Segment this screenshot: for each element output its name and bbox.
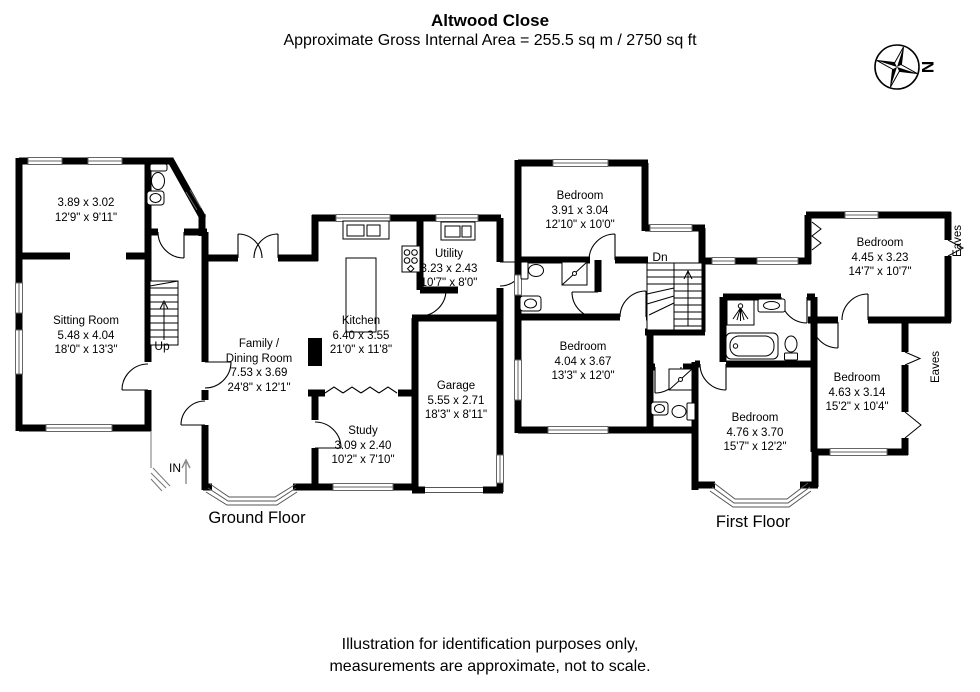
first-floor-title: First Floor — [716, 513, 790, 532]
room-label-family-dining: Family / Dining Room 7.53 x 3.69 24'8" x… — [226, 337, 292, 395]
floorplan-page: Altwood Close Approximate Gross Internal… — [0, 0, 980, 692]
room-dim-imperial: 15'7" x 12'2" — [723, 440, 786, 455]
ground-floor-stairs — [150, 281, 178, 345]
room-label-bedroom-2: Bedroom 4.04 x 3.67 13'3" x 12'0" — [551, 340, 614, 384]
room-dim-imperial: 12'9" x 9'11" — [55, 211, 117, 226]
room-dim-metric: 4.04 x 3.67 — [551, 355, 614, 370]
room-dim-metric: 3.91 x 3.04 — [545, 204, 614, 219]
page-title: Altwood Close — [0, 11, 980, 31]
disclaimer-line-1: Illustration for identification purposes… — [0, 636, 980, 654]
room-name: Bedroom — [848, 236, 911, 251]
room-label-bedroom-1: Bedroom 3.91 x 3.04 12'10" x 10'0" — [545, 189, 614, 233]
ground-floor-bay-window — [206, 484, 297, 505]
room-name: Kitchen — [330, 314, 392, 329]
room-dim-metric: 3.89 x 3.02 — [55, 196, 117, 211]
disclaimer-line-2: measurements are approximate, not to sca… — [0, 658, 980, 676]
room-name-line2: Dining Room — [226, 352, 292, 367]
room-name: Sitting Room — [53, 314, 119, 329]
eaves-label-2: Eaves — [930, 351, 942, 383]
stairs-down-label: Dn — [652, 250, 667, 264]
entrance-porch-steps — [151, 431, 170, 491]
room-name: Family / — [226, 337, 292, 352]
room-name: Garage — [425, 379, 487, 394]
room-label-front-room: 3.89 x 3.02 12'9" x 9'11" — [55, 196, 117, 225]
room-label-garage: Garage 5.55 x 2.71 18'3" x 8'11" — [425, 379, 487, 423]
room-name: Study — [331, 424, 394, 439]
room-dim-imperial: 13'3" x 12'0" — [551, 369, 614, 384]
room-dim-imperial: 15'2" x 10'4" — [825, 400, 888, 415]
room-dim-metric: 6.40 x 3.55 — [330, 329, 392, 344]
room-name: Bedroom — [545, 189, 614, 204]
entrance-in-label: IN — [169, 461, 181, 475]
room-dim-metric: 3.09 x 2.40 — [331, 439, 394, 454]
room-dim-imperial: 14'7" x 10'7" — [848, 265, 911, 280]
room-label-bedroom-4: Bedroom 4.63 x 3.14 15'2" x 10'4" — [825, 371, 888, 415]
room-name: Utility — [421, 247, 478, 262]
room-dim-imperial: 18'0" x 13'3" — [53, 343, 119, 358]
stairs-up-label: Up — [154, 339, 169, 353]
room-label-kitchen: Kitchen 6.40 x 3.55 21'0" x 11'8" — [330, 314, 392, 358]
room-dim-imperial: 18'3" x 8'11" — [425, 408, 487, 423]
room-dim-imperial: 10'2" x 7'10" — [331, 453, 394, 468]
garage-door — [425, 488, 483, 493]
room-label-bedroom-5: Bedroom 4.76 x 3.70 15'7" x 12'2" — [723, 411, 786, 455]
room-dim-metric: 5.55 x 2.71 — [425, 394, 487, 409]
ground-floor-title: Ground Floor — [208, 509, 305, 528]
room-dim-metric: 4.76 x 3.70 — [723, 426, 786, 441]
compass-north-label: N — [917, 61, 937, 73]
room-name: Bedroom — [723, 411, 786, 426]
room-dim-metric: 4.45 x 3.23 — [848, 251, 911, 266]
room-name: Bedroom — [551, 340, 614, 355]
page-subtitle: Approximate Gross Internal Area = 255.5 … — [0, 32, 980, 50]
floorplan-drawing — [0, 0, 980, 692]
entrance-arrow-icon — [182, 460, 190, 484]
first-floor-stairs — [647, 263, 702, 330]
room-dim-imperial: 24'8" x 12'1" — [226, 381, 292, 396]
room-label-sitting-room: Sitting Room 5.48 x 4.04 18'0" x 13'3" — [53, 314, 119, 358]
room-dim-imperial: 21'0" x 11'8" — [330, 343, 392, 358]
first-floor-bay-window — [710, 483, 811, 507]
room-dim-imperial: 10'7" x 8'0" — [421, 276, 478, 291]
room-dim-metric: 4.63 x 3.14 — [825, 386, 888, 401]
room-label-bedroom-3: Bedroom 4.45 x 3.23 14'7" x 10'7" — [848, 236, 911, 280]
room-dim-metric: 7.53 x 3.69 — [226, 366, 292, 381]
room-name: Bedroom — [825, 371, 888, 386]
room-label-utility: Utility 3.23 x 2.43 10'7" x 8'0" — [421, 247, 478, 291]
eaves-label-1: Eaves — [952, 225, 964, 257]
room-label-study: Study 3.09 x 2.40 10'2" x 7'10" — [331, 424, 394, 468]
room-dim-metric: 3.23 x 2.43 — [421, 262, 478, 277]
room-dim-metric: 5.48 x 4.04 — [53, 329, 119, 344]
room-dim-imperial: 12'10" x 10'0" — [545, 218, 614, 233]
